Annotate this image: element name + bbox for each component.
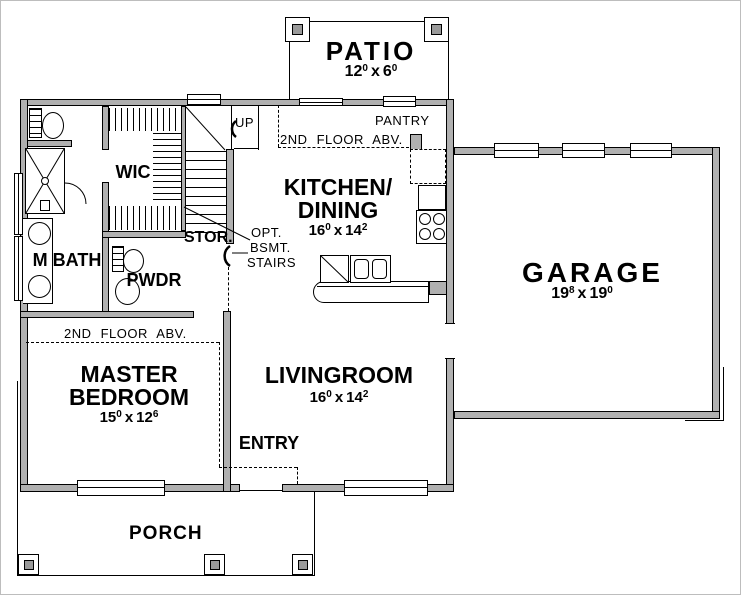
dim-b-sup: 0 <box>607 285 613 296</box>
opt-bsmt-note-line1: OPT. <box>251 226 282 239</box>
opt-bsmt-note-line2: BSMT. <box>250 241 291 254</box>
dim-a: 12 <box>345 63 363 80</box>
dim-a: 15 <box>100 409 117 426</box>
kitchen-dimensions: 160x142 <box>276 223 400 238</box>
dim-a: 16 <box>310 389 327 406</box>
second-floor-note-kitchen: 2ND FLOOR ABV. <box>280 133 403 146</box>
dim-a: 19 <box>551 285 569 302</box>
shower-door-swing-arc <box>65 183 86 204</box>
second-floor-note-bedroom: 2ND FLOOR ABV. <box>64 327 187 340</box>
dim-a-sup: 0 <box>325 222 331 233</box>
livingroom-label: LIVINGROOM <box>259 364 419 387</box>
shower-diagonal <box>45 149 64 181</box>
master-bedroom-label-line2: BEDROOM <box>64 386 194 409</box>
dim-a-sup: 8 <box>569 285 575 296</box>
dim-b-sup: 2 <box>363 389 369 400</box>
wic-label: WIC <box>111 163 155 181</box>
dim-a-sup: 0 <box>362 63 368 74</box>
master-bedroom-dimensions: 150x126 <box>64 410 194 425</box>
master-bath-label: M BATH <box>30 251 104 269</box>
dim-sep: x <box>578 285 587 302</box>
dim-b: 6 <box>383 63 392 80</box>
patio-dimensions: 120x60 <box>311 64 431 80</box>
garage-dimensions: 198x190 <box>522 286 642 302</box>
shower-diagonal <box>45 181 64 213</box>
dim-b-sup: 0 <box>392 63 398 74</box>
stair-landing-diagonal <box>186 107 225 150</box>
patio-label: PATIO <box>311 38 431 64</box>
dishwasher-diagonal <box>321 256 348 282</box>
up-label: UP <box>235 116 254 129</box>
dim-sep: x <box>334 222 342 239</box>
kitchen-label-line1: KITCHEN/ <box>276 176 400 199</box>
dim-sep: x <box>125 409 133 426</box>
livingroom-dimensions: 160x142 <box>259 390 419 405</box>
floor-plan: PATIO 120x60 PANTRY 2ND FLOOR ABV. UP KI… <box>0 0 741 595</box>
dim-a-sup: 0 <box>116 409 122 420</box>
dim-b: 14 <box>345 222 362 239</box>
master-bedroom-label-line1: MASTER <box>64 363 194 386</box>
storage-door-swing-arc <box>225 246 230 266</box>
dim-b: 14 <box>346 389 363 406</box>
dim-sep: x <box>371 63 380 80</box>
dim-b-sup: 2 <box>362 222 368 233</box>
pantry-label: PANTRY <box>375 114 430 127</box>
kitchen-label-line2: DINING <box>276 199 400 222</box>
dim-b: 19 <box>589 285 607 302</box>
dim-sep: x <box>335 389 343 406</box>
dim-b: 12 <box>136 409 153 426</box>
powder-label: PWDR <box>125 271 183 289</box>
garage-label: GARAGE <box>522 259 642 287</box>
shower-diagonal <box>26 181 45 213</box>
storage-label: STOR. <box>184 230 232 246</box>
shower-diagonal <box>26 149 45 181</box>
dim-b-sup: 6 <box>153 409 159 420</box>
opt-bsmt-note-line3: STAIRS <box>247 256 296 269</box>
dim-a: 16 <box>309 222 326 239</box>
entry-label: ENTRY <box>238 434 300 452</box>
dim-a-sup: 0 <box>326 389 332 400</box>
porch-label: PORCH <box>129 524 201 543</box>
shower-drain-center <box>42 178 49 185</box>
